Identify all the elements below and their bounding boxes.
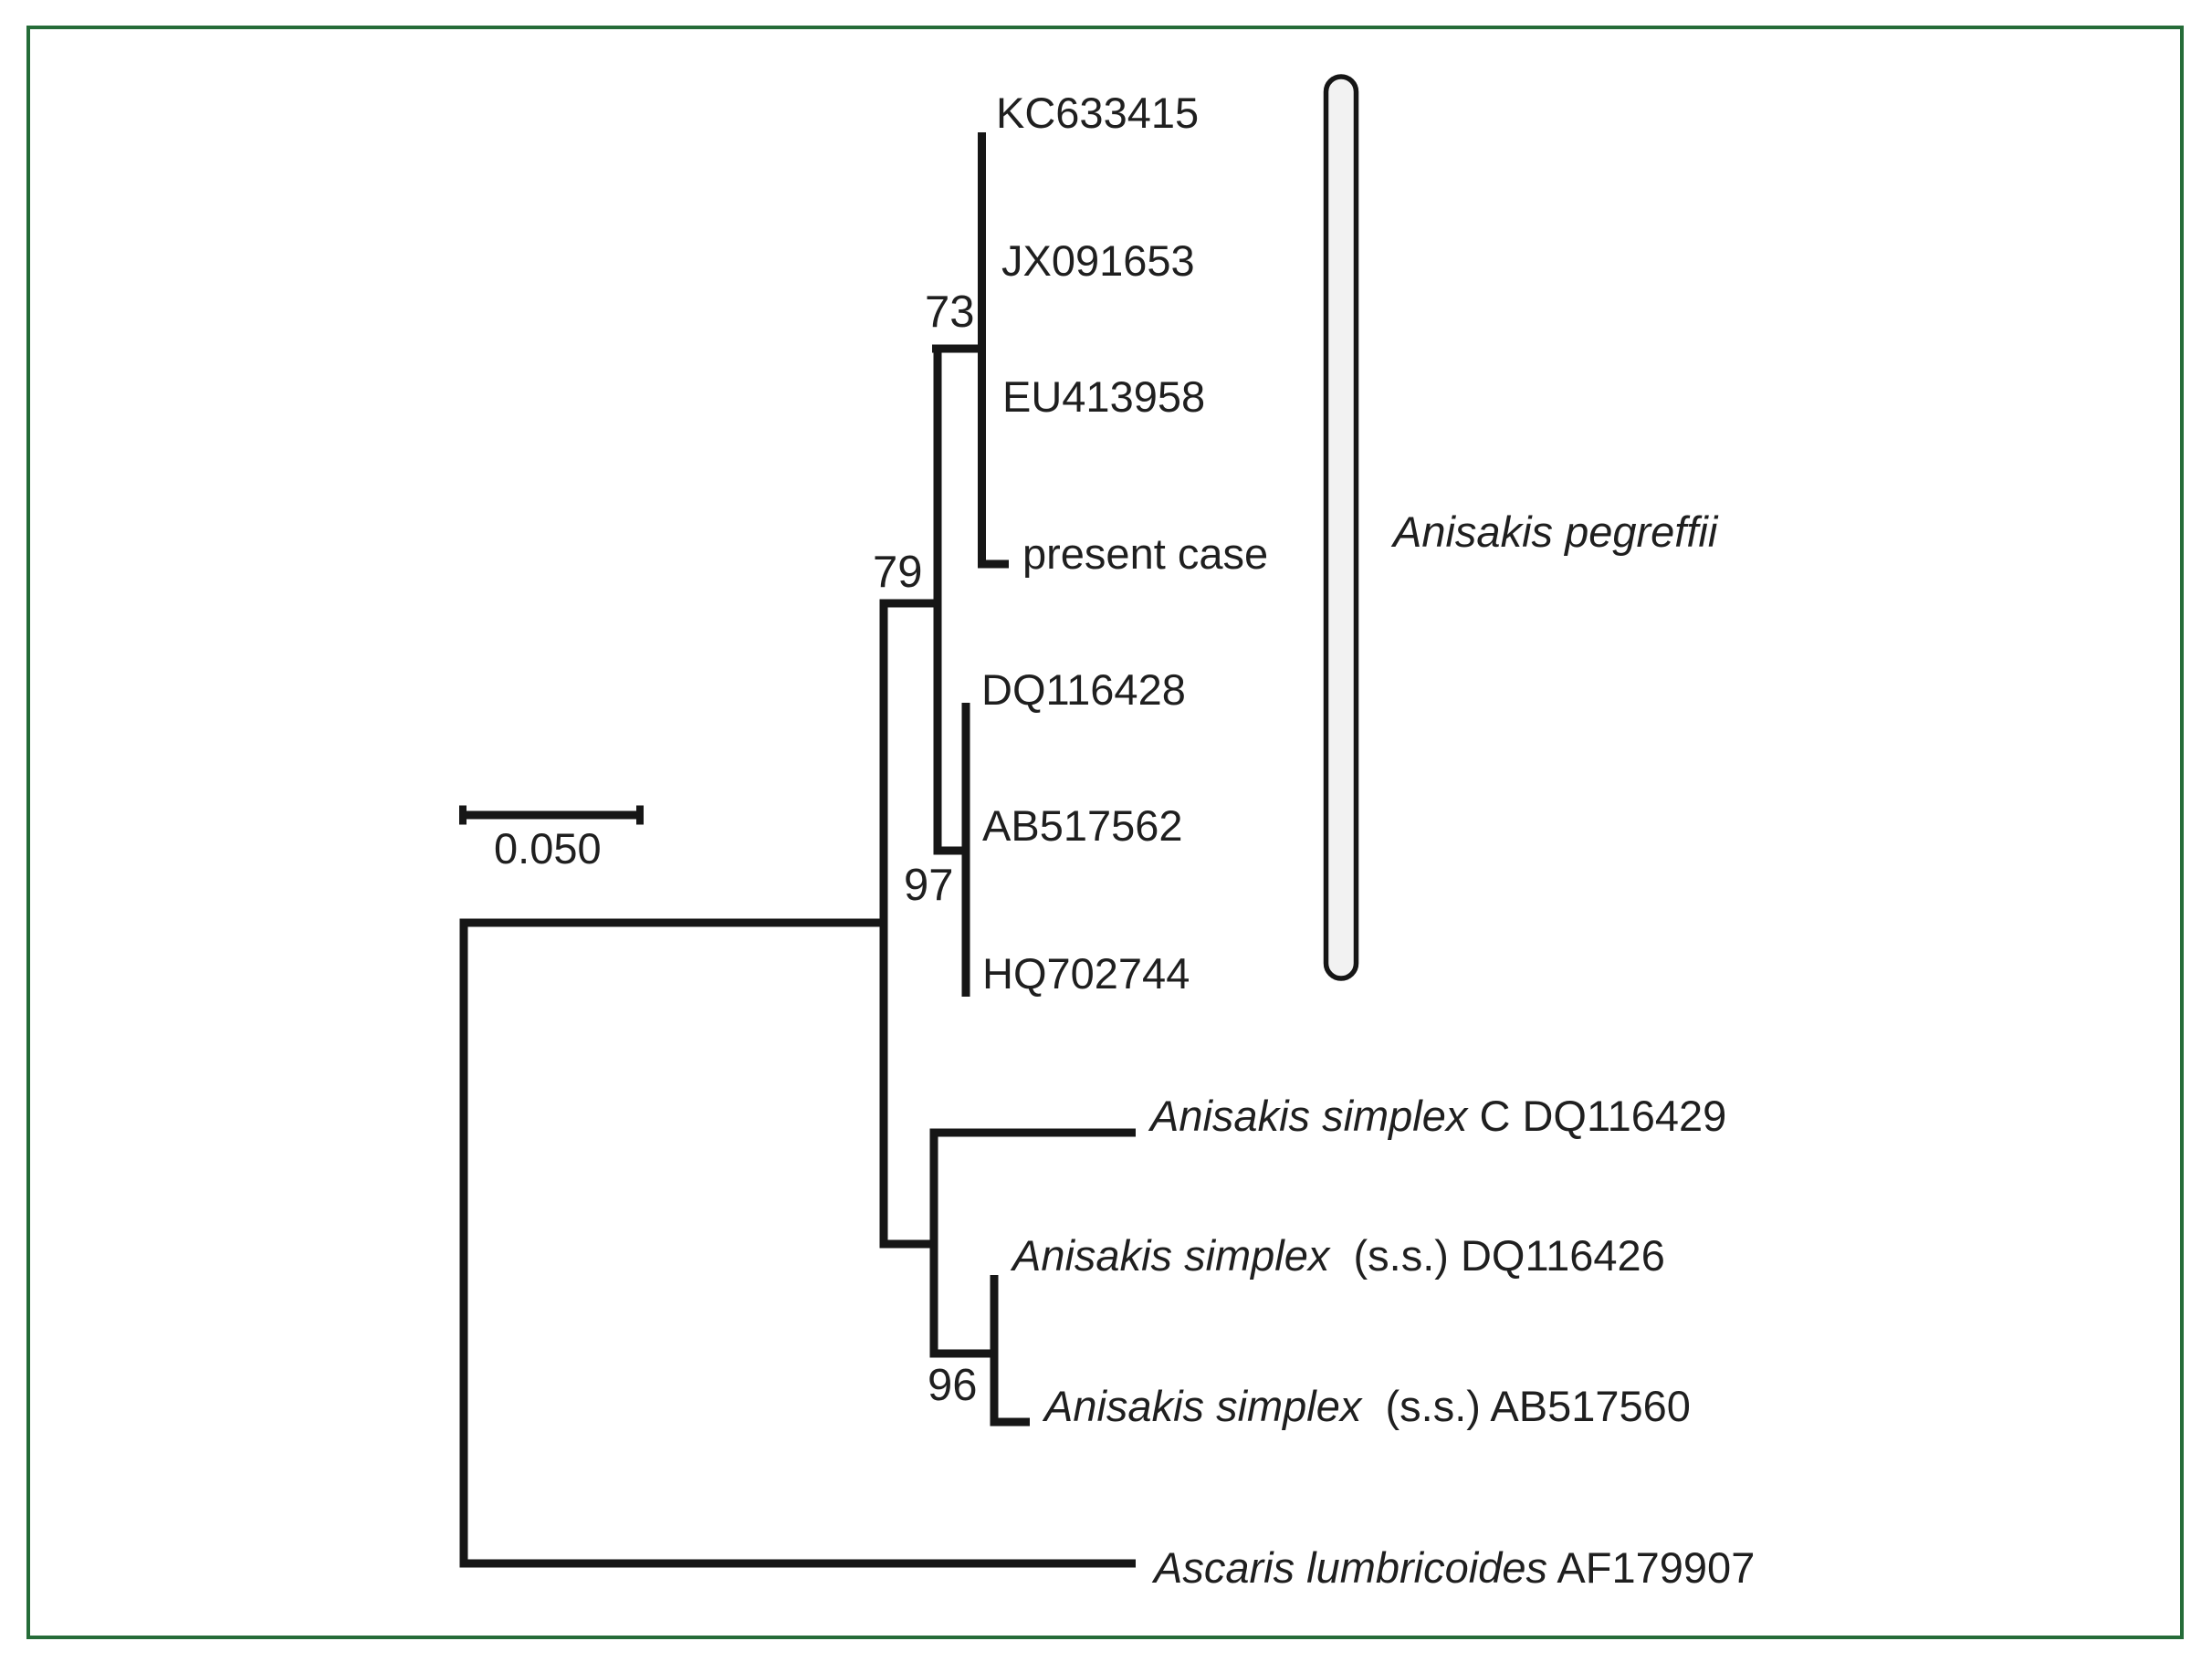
- svg-text:EU413958: EU413958: [1002, 372, 1205, 421]
- svg-text:DQ116428: DQ116428: [981, 665, 1186, 714]
- svg-text:97: 97: [904, 861, 954, 910]
- svg-text:79: 79: [873, 548, 923, 597]
- svg-text:73: 73: [925, 287, 975, 337]
- svg-text:Anisakis pegreffii: Anisakis pegreffii: [1390, 507, 1719, 556]
- svg-text:Ascaris lumbricoides AF179907: Ascaris lumbricoides AF179907: [1151, 1543, 1755, 1592]
- svg-text:present case: present case: [1022, 529, 1268, 578]
- svg-text:AB517562: AB517562: [982, 801, 1183, 850]
- svg-text:HQ702744: HQ702744: [982, 949, 1190, 998]
- svg-text:Anisakis simplex (s.s.) AB517: Anisakis simplex (s.s.) AB517560: [1042, 1382, 1691, 1430]
- svg-text:Anisakis simplex C DQ116429: Anisakis simplex C DQ116429: [1148, 1092, 1726, 1140]
- svg-text:96: 96: [928, 1361, 978, 1410]
- svg-text:Anisakis simplex (s.s.) DQ116: Anisakis simplex (s.s.) DQ116426: [1010, 1231, 1665, 1280]
- svg-text:KC633415: KC633415: [996, 89, 1199, 137]
- svg-text:0.050: 0.050: [494, 824, 602, 873]
- svg-text:JX091653: JX091653: [1001, 236, 1195, 285]
